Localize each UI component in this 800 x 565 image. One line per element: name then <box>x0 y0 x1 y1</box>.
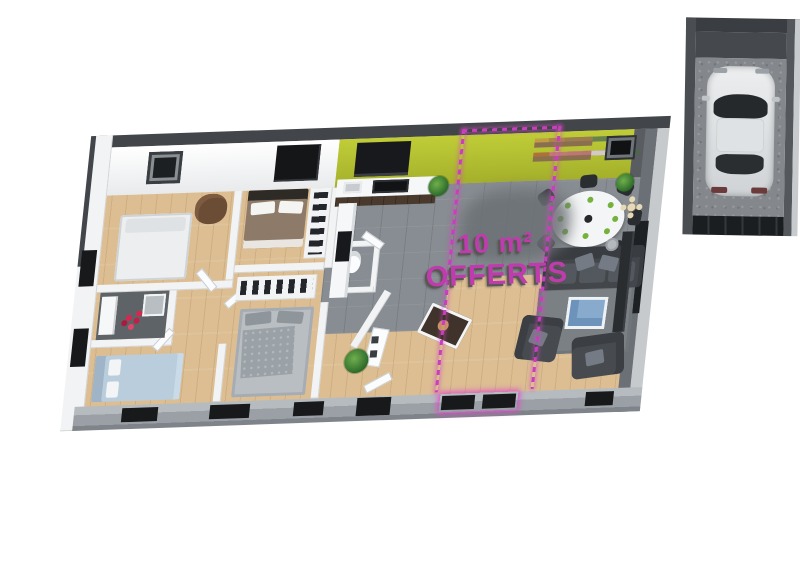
entrance-door-opening <box>356 397 392 416</box>
car-mirror-right <box>772 97 780 102</box>
floorplan-render: 10 m² OFFERTS <box>0 0 800 565</box>
bed-brown-pillow-1 <box>251 201 276 216</box>
garage-back-wall-face <box>695 31 786 59</box>
bed-brown-pillow-2 <box>278 201 304 214</box>
garage <box>682 17 800 236</box>
wardrobe-clothes-icon-2 <box>240 278 313 295</box>
bed-brown <box>243 189 309 249</box>
wall-tv-panel <box>274 144 322 182</box>
coffee-table-glass <box>564 297 608 329</box>
car-windshield <box>713 94 767 119</box>
car-headlights <box>713 68 727 73</box>
picture-frame-dining <box>604 135 637 160</box>
garage-door <box>692 215 783 236</box>
bed-gray-blanket <box>240 326 295 379</box>
bed-blue <box>91 353 184 402</box>
cooktop-icon <box>372 179 409 193</box>
car-taillights <box>711 187 727 193</box>
bottom-window-4 <box>585 391 614 406</box>
picture-frame-bedroom <box>146 151 183 184</box>
car-rear-window <box>715 154 763 175</box>
kitchen-oven-hood <box>354 141 412 177</box>
house-stage: 10 m² OFFERTS <box>60 80 674 432</box>
offer-window-right <box>482 393 516 408</box>
bed-blue-pillows <box>108 359 122 375</box>
offer-window-left <box>441 395 475 410</box>
dining-chair-1 <box>580 174 598 189</box>
bottom-window-3 <box>293 401 324 416</box>
bed-white-pillows <box>125 217 186 233</box>
bed-gray-pillow-2 <box>276 311 304 324</box>
bottom-window-2 <box>209 404 250 419</box>
car-top-view <box>705 66 775 197</box>
bottom-window-1 <box>121 407 158 422</box>
kitchen-sink <box>343 182 362 194</box>
offer-label: 10 m² OFFERTS <box>420 225 572 294</box>
shower-tray <box>142 294 166 317</box>
console-stools <box>371 336 379 343</box>
car-roof <box>716 118 765 153</box>
offer-area-word: OFFERTS <box>421 255 572 294</box>
car-mirror-left <box>702 96 710 101</box>
